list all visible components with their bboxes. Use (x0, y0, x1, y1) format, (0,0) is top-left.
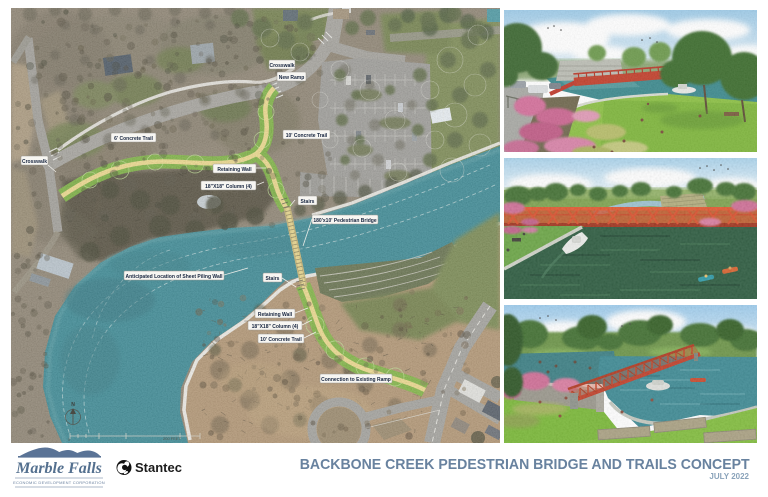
svg-text:6' Concrete Trail: 6' Concrete Trail (114, 136, 153, 142)
svg-text:18"X18" Column (4): 18"X18" Column (4) (205, 184, 252, 190)
svg-text:Stantec: Stantec (135, 460, 182, 475)
svg-text:10' Concrete Trail: 10' Concrete Trail (260, 337, 302, 343)
svg-text:200 FEET: 200 FEET (163, 436, 182, 441)
svg-text:Stairs: Stairs (266, 276, 280, 282)
svg-text:Connection to Existing Ramp: Connection to Existing Ramp (321, 377, 391, 383)
svg-text:18"X18" Column (4): 18"X18" Column (4) (252, 324, 299, 330)
svg-text:N: N (71, 402, 75, 408)
svg-text:Retaining Wall: Retaining Wall (258, 312, 293, 318)
svg-text:Anticipated Location of Sheet: Anticipated Location of Sheet Piling Wal… (125, 274, 223, 280)
svg-text:New Ramp: New Ramp (279, 75, 305, 81)
svg-text:ECONOMIC DEVELOPMENT CORPORATI: ECONOMIC DEVELOPMENT CORPORATION (13, 480, 105, 485)
svg-text:Crosswalk: Crosswalk (22, 159, 47, 165)
svg-text:Retaining Wall: Retaining Wall (217, 167, 252, 173)
svg-text:Stairs: Stairs (301, 199, 315, 205)
svg-text:Marble Falls: Marble Falls (15, 460, 102, 477)
svg-text:Crosswalk: Crosswalk (269, 63, 294, 69)
svg-text:0: 0 (68, 438, 70, 442)
svg-text:180'x10' Pedestrian Bridge: 180'x10' Pedestrian Bridge (313, 218, 376, 224)
svg-text:10' Concrete Trail: 10' Concrete Trail (286, 133, 328, 139)
